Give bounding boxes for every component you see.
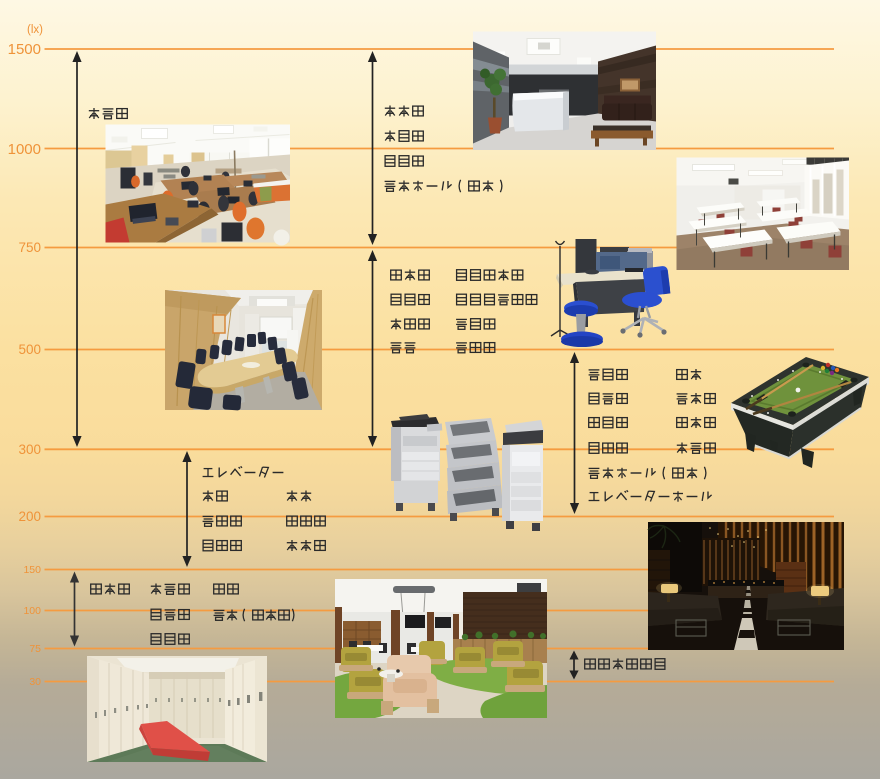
svg-text:750: 750 xyxy=(18,240,41,255)
svg-text:200: 200 xyxy=(18,509,41,524)
svg-text:1500: 1500 xyxy=(8,41,41,58)
svg-text:500: 500 xyxy=(18,342,41,357)
svg-text:30: 30 xyxy=(29,676,41,688)
svg-text:(lx): (lx) xyxy=(27,24,43,36)
svg-text:300: 300 xyxy=(18,442,41,457)
svg-text:100: 100 xyxy=(23,605,41,617)
svg-text:75: 75 xyxy=(29,643,41,655)
svg-text:1000: 1000 xyxy=(8,141,41,158)
svg-text:150: 150 xyxy=(23,564,41,576)
